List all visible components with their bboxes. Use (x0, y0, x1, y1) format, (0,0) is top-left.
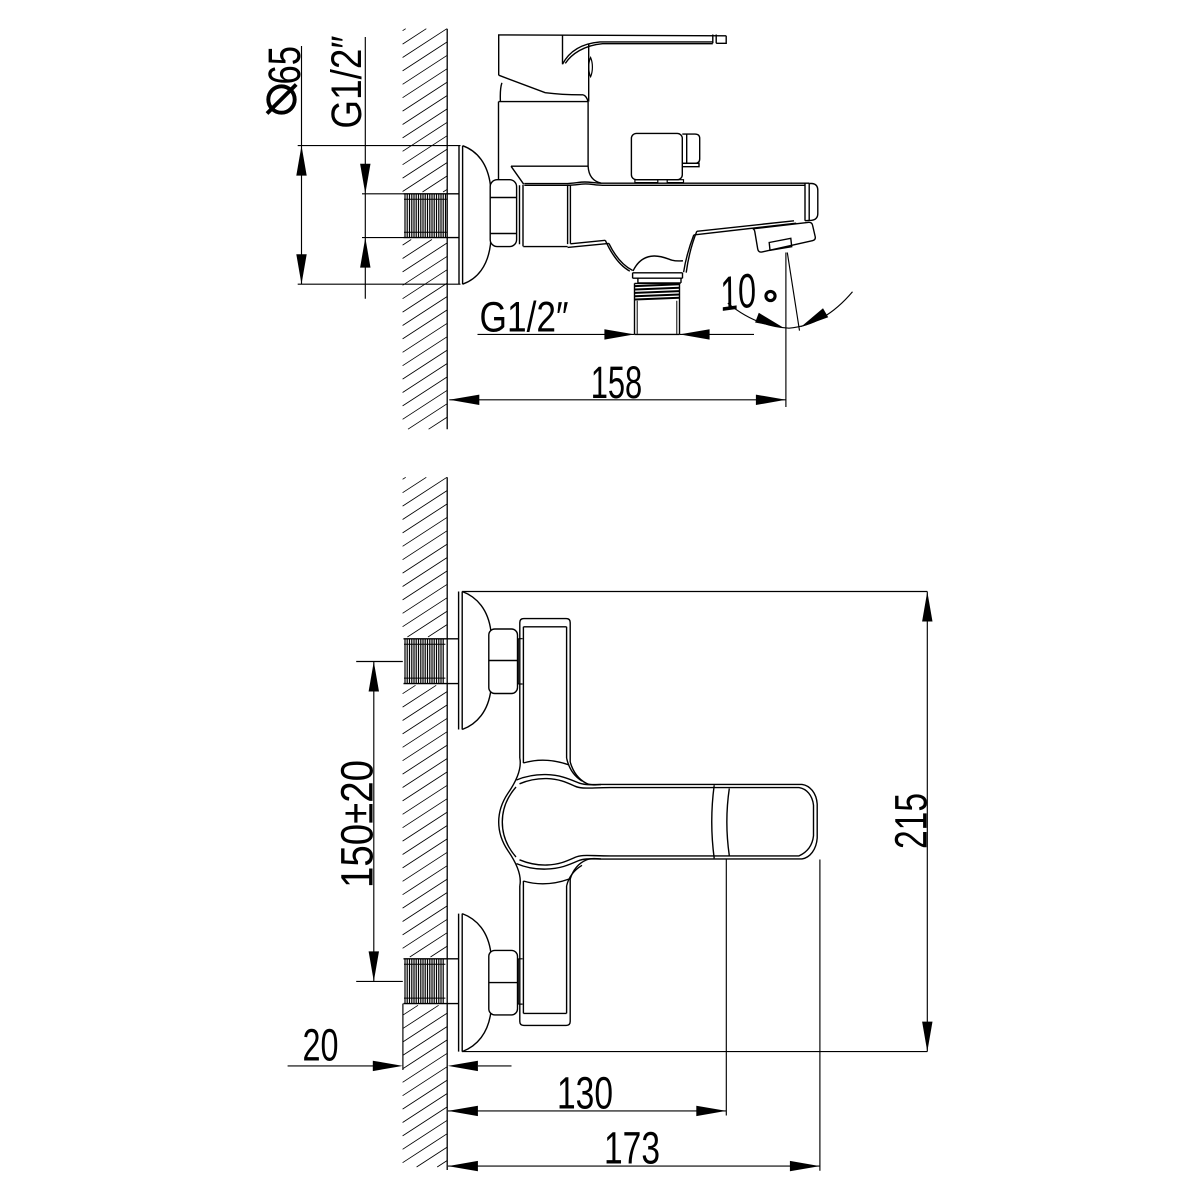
svg-text:150±20: 150±20 (331, 760, 382, 888)
svg-text:173: 173 (604, 1123, 660, 1174)
svg-text:G1/2″: G1/2″ (323, 36, 371, 129)
svg-text:20: 20 (303, 1020, 339, 1071)
svg-text:10: 10 (716, 264, 759, 322)
svg-text:65: 65 (259, 46, 310, 85)
svg-text:130: 130 (557, 1068, 613, 1119)
svg-text:G1/2″: G1/2″ (480, 294, 569, 342)
svg-text:158: 158 (591, 357, 643, 408)
svg-text:215: 215 (886, 793, 937, 849)
